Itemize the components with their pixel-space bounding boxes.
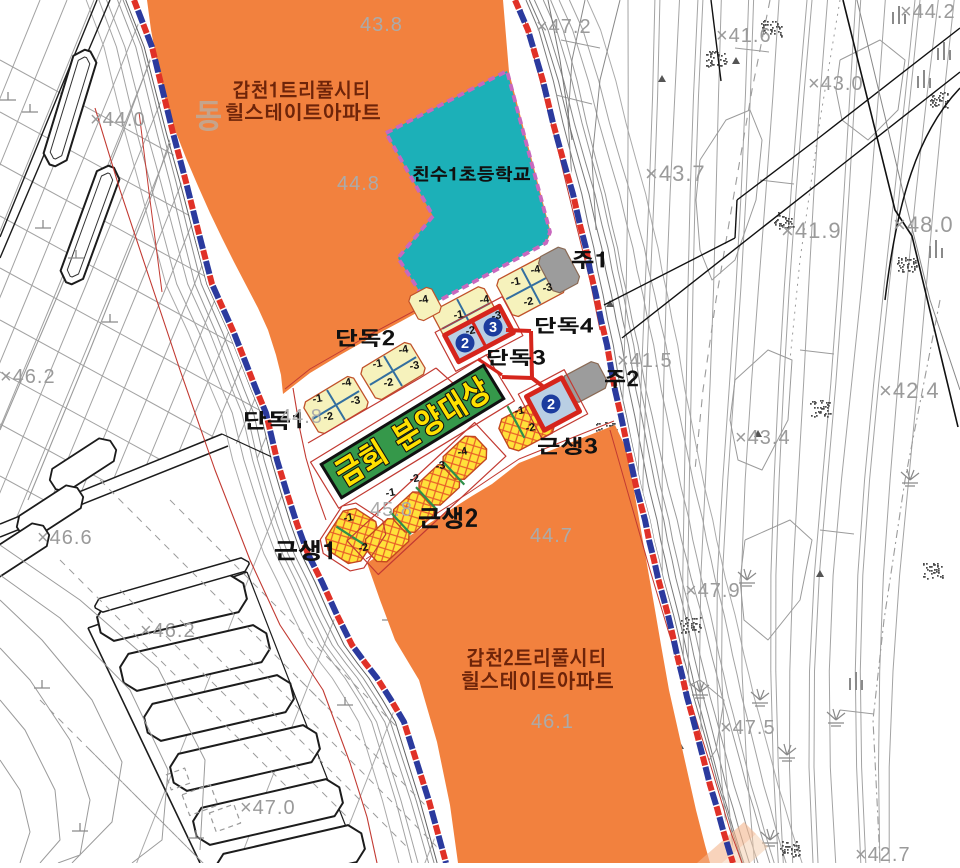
svg-text:×43.0: ×43.0 [808, 73, 864, 95]
svg-text:×41.5: ×41.5 [617, 350, 673, 372]
svg-text:×48.0: ×48.0 [893, 212, 954, 237]
svg-text:-1: -1 [514, 404, 526, 418]
svg-text:-1: -1 [510, 275, 522, 289]
svg-text:×43.4: ×43.4 [735, 427, 791, 449]
svg-text:-2: -2 [323, 410, 335, 424]
svg-text:44.7: 44.7 [530, 525, 573, 547]
svg-text:2: 2 [461, 336, 469, 352]
svg-text:-1: -1 [372, 357, 384, 371]
svg-text:×43.7: ×43.7 [645, 161, 706, 186]
svg-text:-2: -2 [358, 541, 370, 555]
svg-text:×46.2: ×46.2 [0, 366, 56, 388]
svg-text:×41.9: ×41.9 [781, 218, 842, 243]
svg-text:-3: -3 [542, 281, 554, 295]
svg-text:×46.2: ×46.2 [140, 620, 196, 642]
svg-text:46.1: 46.1 [531, 711, 574, 733]
svg-text:×47.0: ×47.0 [240, 797, 296, 819]
svg-text:-3: -3 [350, 394, 362, 408]
svg-text:-1: -1 [343, 511, 355, 525]
svg-text:×47.9: ×47.9 [685, 580, 741, 602]
svg-text:-2: -2 [383, 376, 395, 390]
svg-text:×46.6: ×46.6 [37, 527, 93, 549]
svg-text:44.8: 44.8 [280, 406, 323, 428]
svg-text:×42.4: ×42.4 [879, 378, 940, 403]
svg-text:×44.0: ×44.0 [90, 109, 146, 131]
svg-text:×47.2: ×47.2 [536, 16, 592, 38]
svg-text:45.8: 45.8 [370, 499, 413, 521]
svg-text:44.8: 44.8 [337, 173, 380, 195]
svg-text:×44.2: ×44.2 [900, 1, 956, 23]
svg-text:-2: -2 [523, 295, 535, 309]
svg-text:×42.7: ×42.7 [855, 844, 911, 863]
svg-text:-2: -2 [409, 472, 421, 486]
svg-text:2: 2 [547, 397, 555, 413]
svg-text:-3: -3 [435, 459, 447, 473]
svg-text:-2: -2 [465, 324, 477, 338]
svg-text:-3: -3 [491, 309, 503, 323]
svg-text:-1: -1 [453, 308, 465, 322]
svg-text:×41.6: ×41.6 [716, 25, 772, 47]
svg-text:43.8: 43.8 [360, 14, 403, 36]
svg-text:×47.5: ×47.5 [720, 717, 776, 739]
svg-text:-3: -3 [409, 359, 421, 373]
svg-text:-1: -1 [385, 486, 397, 500]
svg-text:-2: -2 [525, 421, 537, 435]
svg-text:-1: -1 [312, 392, 324, 406]
